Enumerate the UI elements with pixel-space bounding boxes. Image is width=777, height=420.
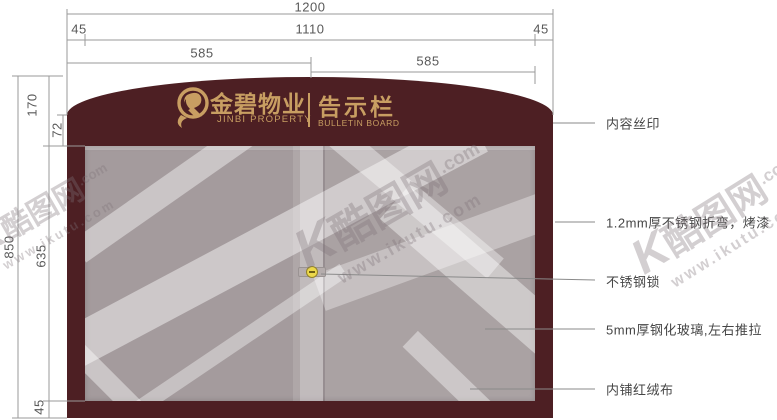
- brand-name-en: JINBI PROPERTY: [217, 114, 312, 125]
- callout-glass: 5mm厚钢化玻璃,左右推拉: [606, 320, 762, 339]
- jinbi-logo-icon: [172, 81, 214, 131]
- callout-steel-lock: 不锈钢锁: [606, 272, 660, 291]
- callout-velvet: 内铺红绒布: [606, 380, 674, 399]
- board-title-cn: 告示栏: [318, 88, 396, 122]
- dim-header-height: 170: [25, 93, 40, 116]
- bulletin-board: 金碧物业 JINBI PROPERTY 告示栏 BULLETIN BOARD: [67, 77, 553, 418]
- dim-side-left: 45: [71, 22, 86, 37]
- header-divider: [308, 93, 310, 127]
- dim-inner-width: 1110: [296, 22, 325, 37]
- dim-total-height: 850: [2, 235, 17, 258]
- dim-glass-height: 635: [34, 244, 49, 267]
- steel-lock-icon: [306, 266, 318, 278]
- dim-corner-height: 72: [50, 122, 65, 137]
- callout-steel-frame: 1.2mm厚不锈钢折弯，烤漆: [606, 213, 770, 232]
- lock-slot: [309, 271, 315, 273]
- dim-total-width: 1200: [295, 0, 326, 15]
- dim-half-right: 585: [416, 54, 439, 69]
- glass-top-highlight: [85, 146, 535, 150]
- dim-half-left: 585: [190, 46, 213, 61]
- glass-panel: [85, 146, 535, 401]
- dim-side-right: 45: [533, 22, 548, 37]
- dim-bottom-height: 45: [32, 399, 47, 414]
- bulletin-board-spec-drawing: 金碧物业 JINBI PROPERTY 告示栏 BULLETIN BOARD: [0, 0, 777, 420]
- board-title-en: BULLETIN BOARD: [318, 118, 400, 128]
- callout-silkscreen: 内容丝印: [606, 114, 660, 133]
